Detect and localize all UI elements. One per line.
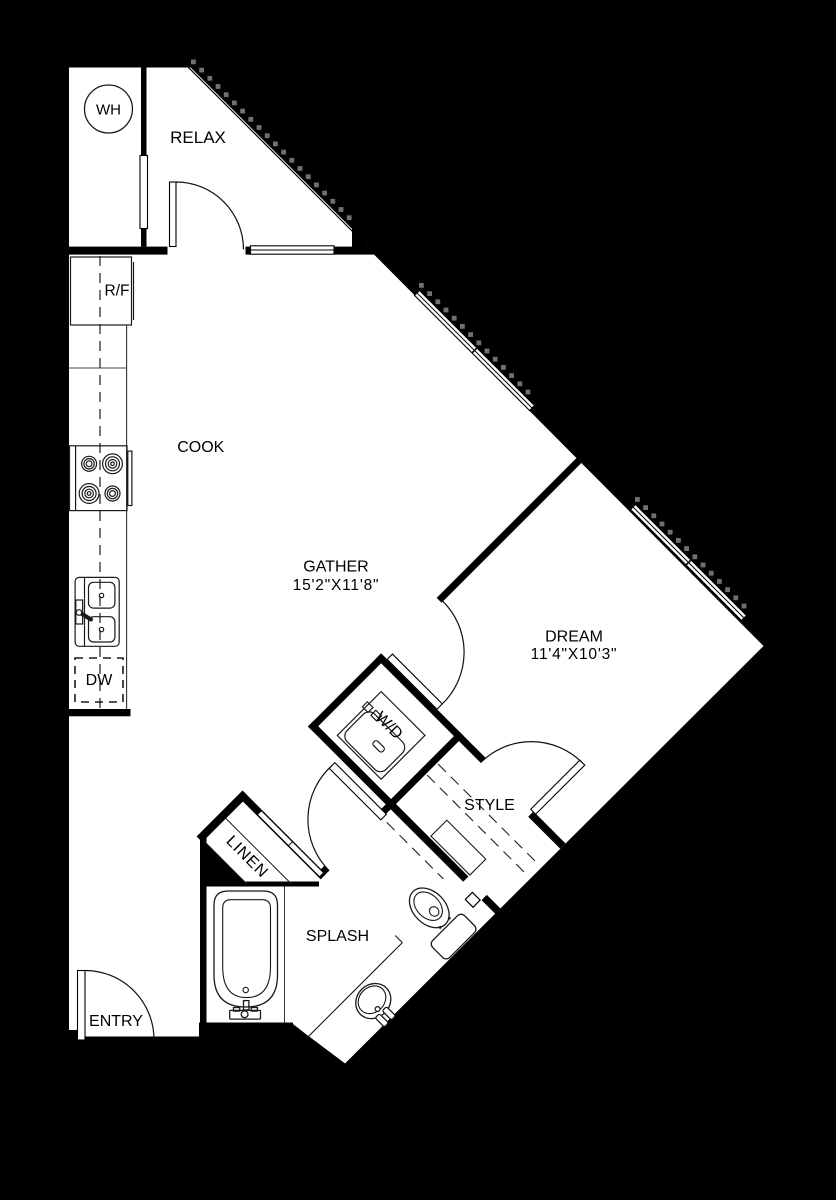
svg-text:ENTRY: ENTRY	[89, 1013, 143, 1030]
svg-text:WH: WH	[96, 102, 121, 119]
svg-text:RELAX: RELAX	[170, 128, 226, 147]
svg-text:DW: DW	[86, 672, 114, 689]
svg-text:R/F: R/F	[105, 283, 130, 300]
svg-text:SPLASH: SPLASH	[306, 928, 369, 945]
svg-text:15'2"X11'8": 15'2"X11'8"	[293, 577, 380, 594]
svg-text:STYLE: STYLE	[464, 797, 515, 814]
svg-text:11'4"X10'3": 11'4"X10'3"	[531, 646, 618, 663]
svg-text:DREAM: DREAM	[545, 629, 603, 646]
svg-text:COOK: COOK	[177, 439, 224, 456]
svg-text:GATHER: GATHER	[303, 559, 368, 576]
